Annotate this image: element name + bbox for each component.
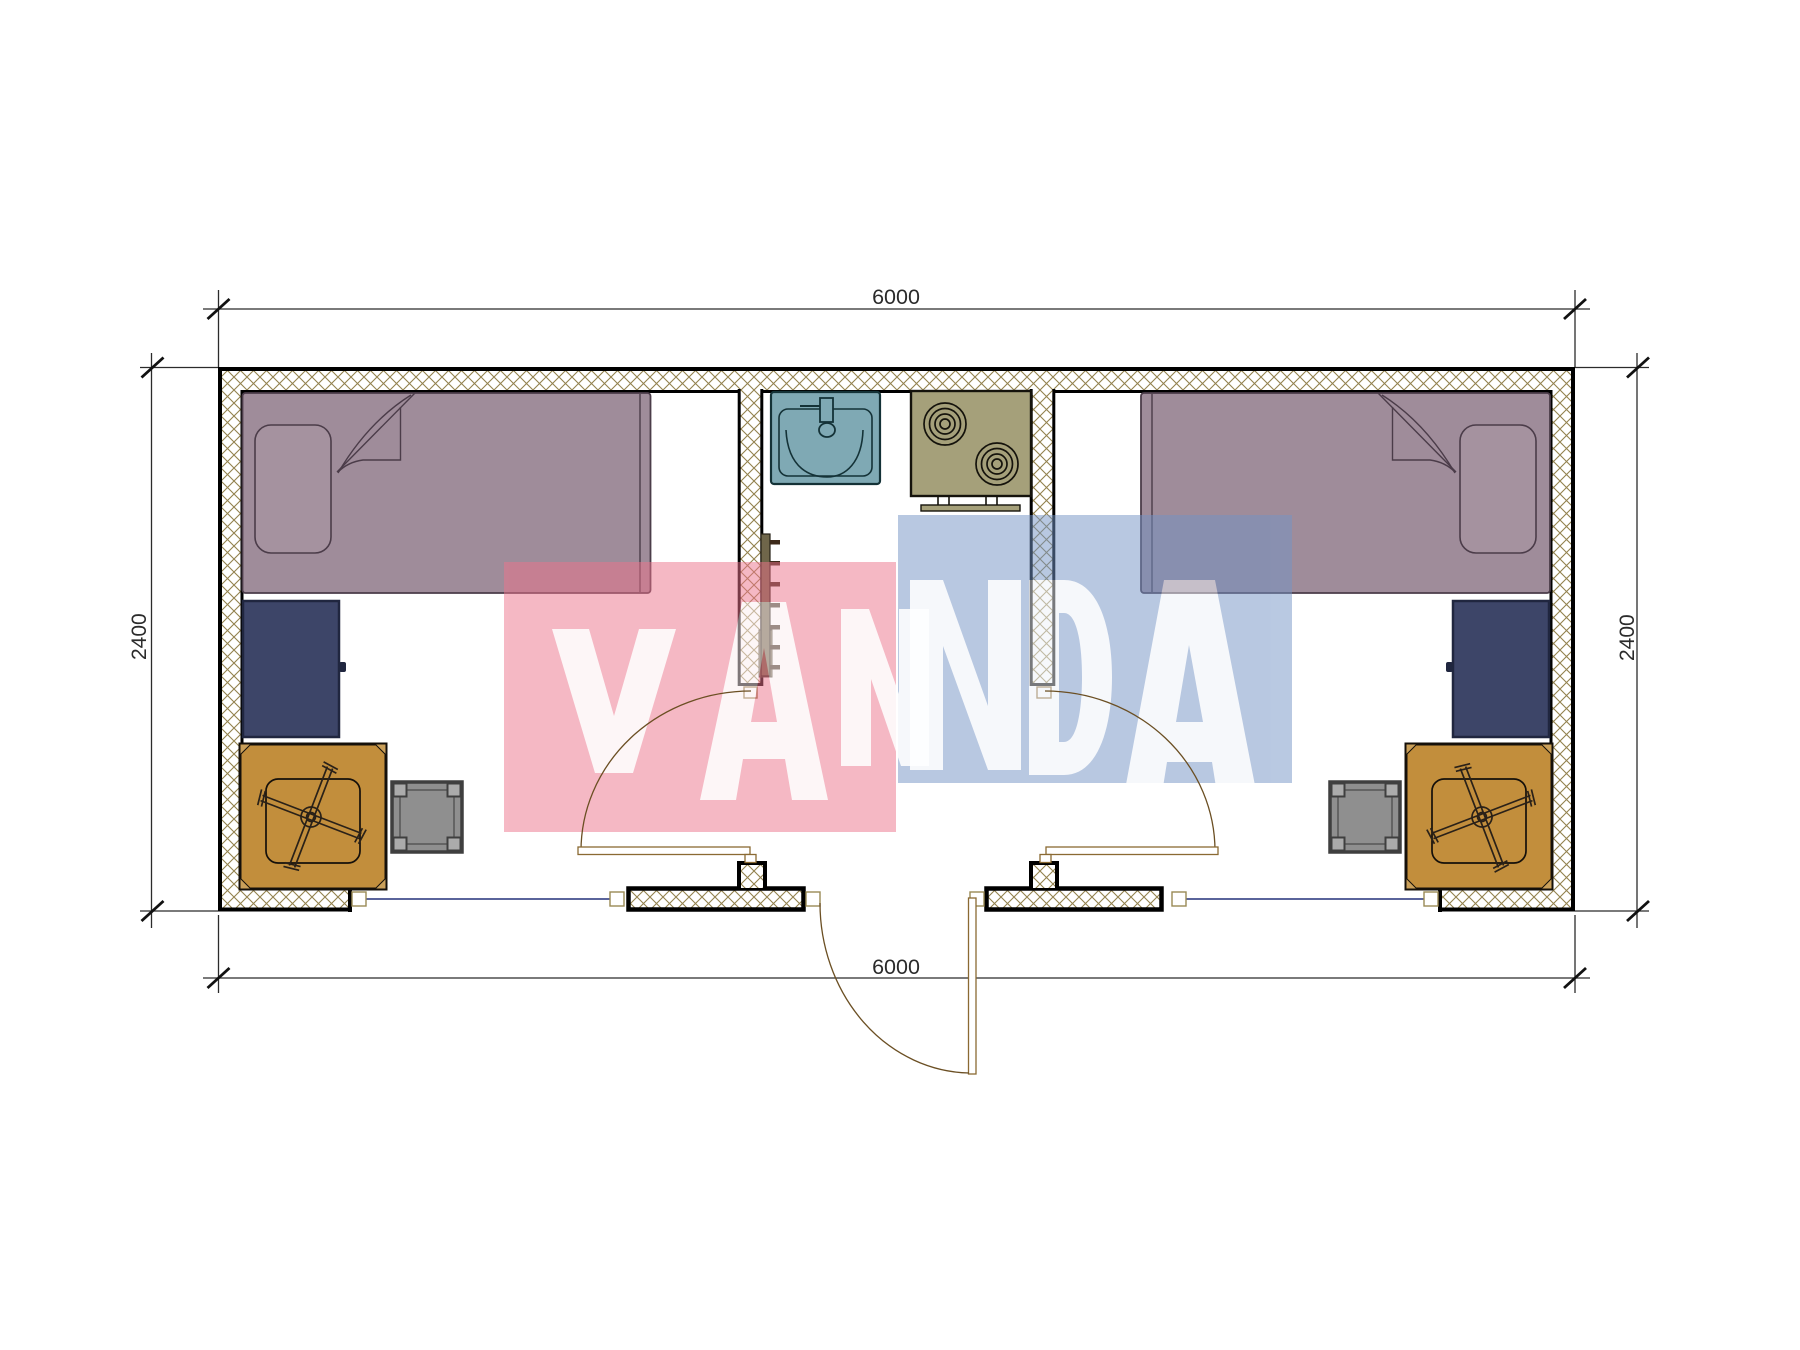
svg-text:6000: 6000 [872, 285, 920, 309]
svg-text:6000: 6000 [872, 955, 920, 979]
svg-text:2400: 2400 [128, 613, 151, 660]
svg-text:2400: 2400 [1616, 614, 1639, 661]
